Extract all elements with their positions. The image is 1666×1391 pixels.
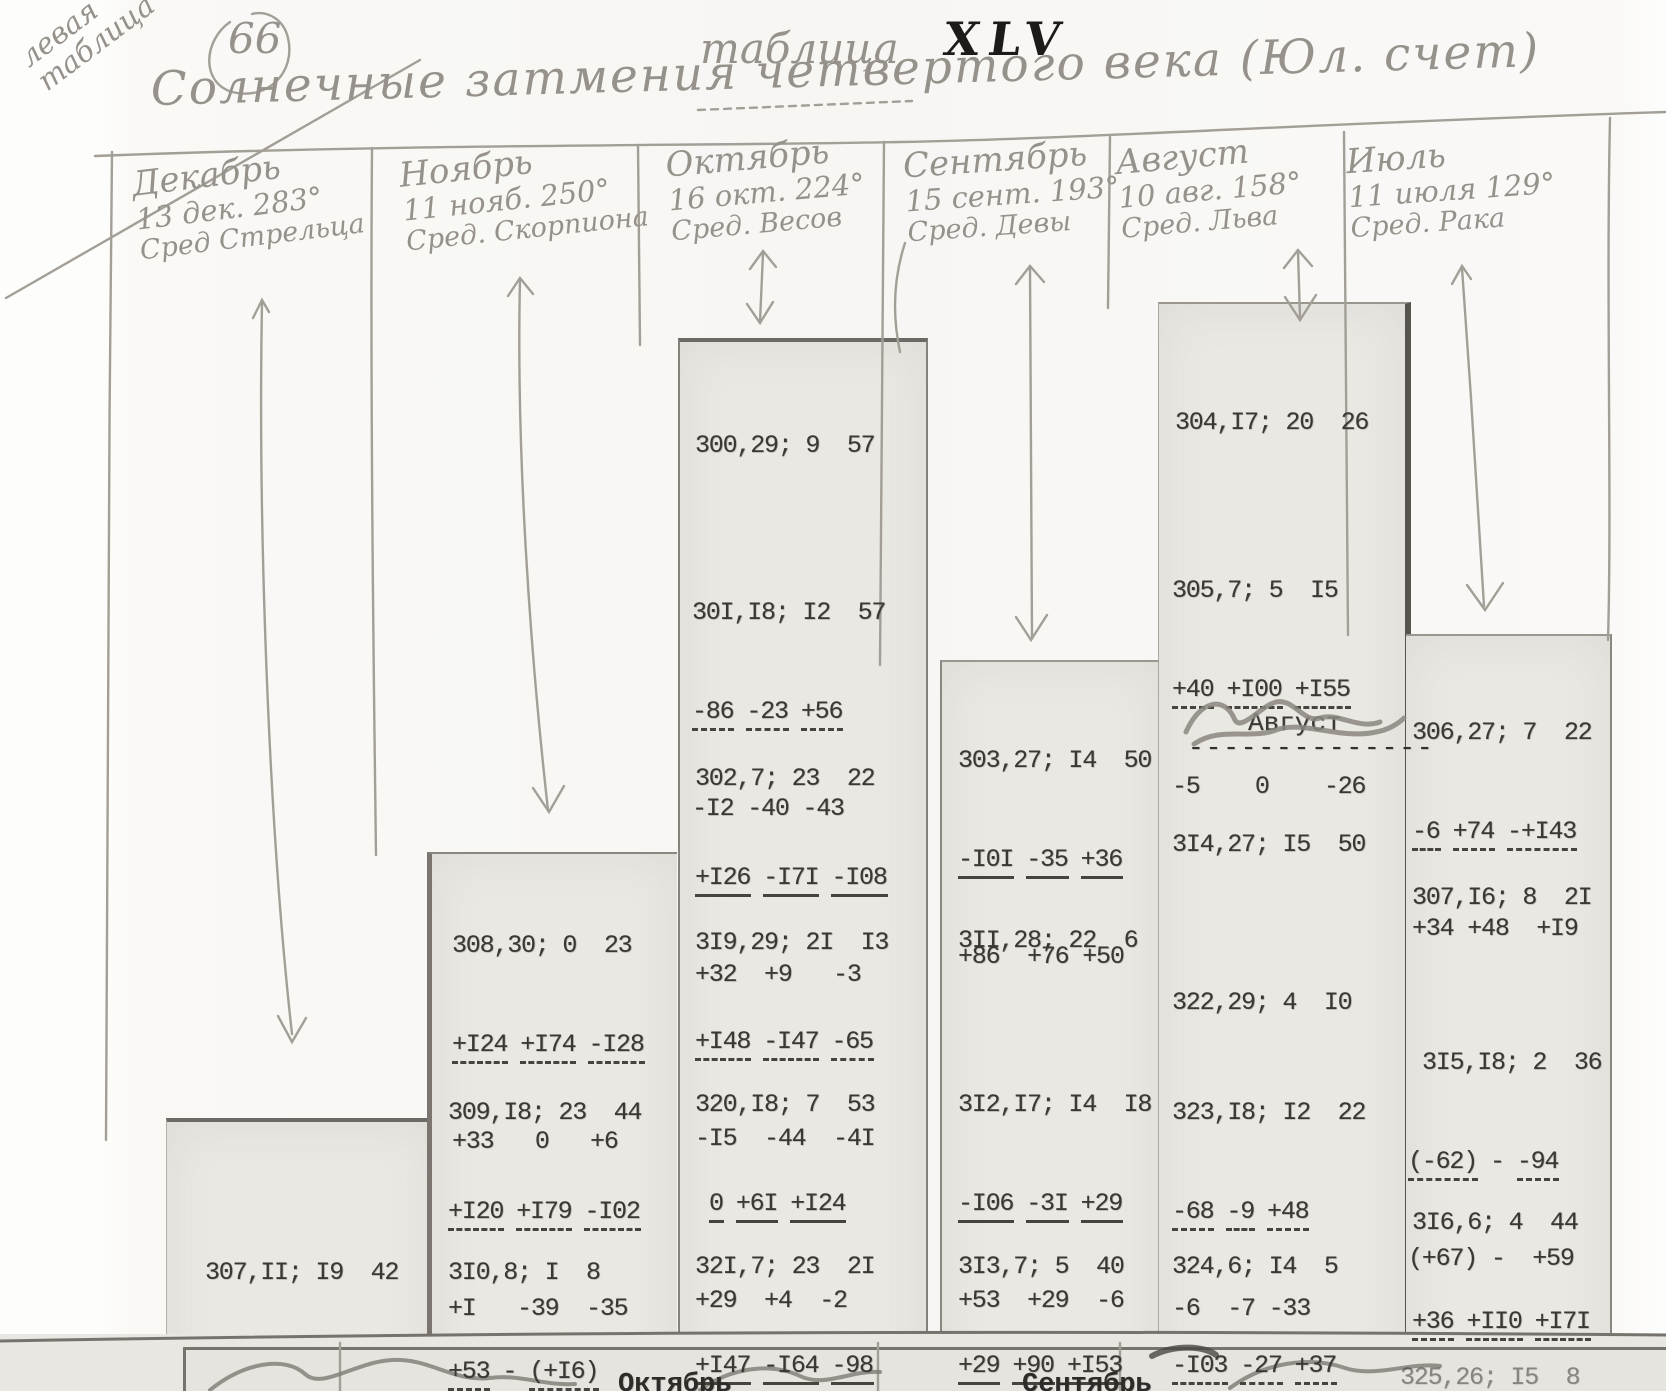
eclipse-entry-307-jul: 307,I6; 8 2I	[1412, 825, 1591, 973]
arrow-november	[508, 278, 564, 812]
eclipse-entry-311: 3II,28; 22 6	[958, 868, 1137, 1016]
eclipse-entry-325: 325,26; I5 8	[1400, 1305, 1579, 1391]
eclipse-entry-321: 32I,7; 23 2I +I47-I64-98 +80 +65 +47	[695, 1194, 886, 1391]
arrow-october	[747, 251, 776, 323]
column-header-july: Июль 11 июля 129° Сред. Рака	[1345, 129, 1559, 244]
eclipse-entry-300: 300,29; 9 57	[695, 373, 874, 521]
pencil-curve	[895, 243, 905, 352]
strikethrough-dashes: --------------	[1188, 733, 1434, 763]
column-header-august: Август 10 авг. 158° Сред. Льва	[1114, 128, 1305, 244]
table-right-border	[1608, 118, 1610, 640]
arrow-december	[253, 300, 306, 1042]
divider-2	[371, 148, 376, 855]
eclipse-entry-310: 3I0,8; I 8 +53-(+I6) -54 - (-69)	[448, 1200, 614, 1391]
margin-note: левая таблица	[14, 0, 160, 97]
column-header-december: Декабрь 13 дек. 283° Сред Стрельца	[130, 139, 367, 267]
arrow-september	[1016, 266, 1047, 640]
divider-1	[106, 152, 112, 1140]
title-underline	[698, 101, 912, 110]
arrow-july	[1452, 266, 1503, 610]
page-number-note: 66	[228, 14, 281, 63]
scanned-document-page: левая таблица 66 таблица XLV Солнечные з…	[0, 0, 1666, 1391]
eclipse-entry-307-dec: 307,II; I9 42	[205, 1200, 398, 1348]
column-header-november: Ноябрь 11 нояб. 250° Сред. Скорпиона	[397, 132, 650, 258]
eclipse-entry-324: 324,6; I4 5 -I03-27+37 +33 +4I +I2	[1172, 1194, 1349, 1391]
eclipse-entry-304: 304,I7; 20 26	[1175, 350, 1368, 498]
eclipse-entry-314: 3I4,27; I5 50	[1172, 772, 1365, 920]
column-header-october: Октябрь 16 окт. 224° Сред. Весов	[664, 130, 869, 248]
bottom-partial-word-september: Сентябрь	[1022, 1370, 1152, 1391]
bottom-partial-word-october: Октябрь	[618, 1370, 731, 1391]
column-header-september: Сентябрь 15 сент. 193° Сред. Девы	[902, 133, 1123, 248]
eclipse-entry-313: 3I3,7; 5 40 +29+90+I53 +I0 -I5 -46	[958, 1194, 1135, 1391]
